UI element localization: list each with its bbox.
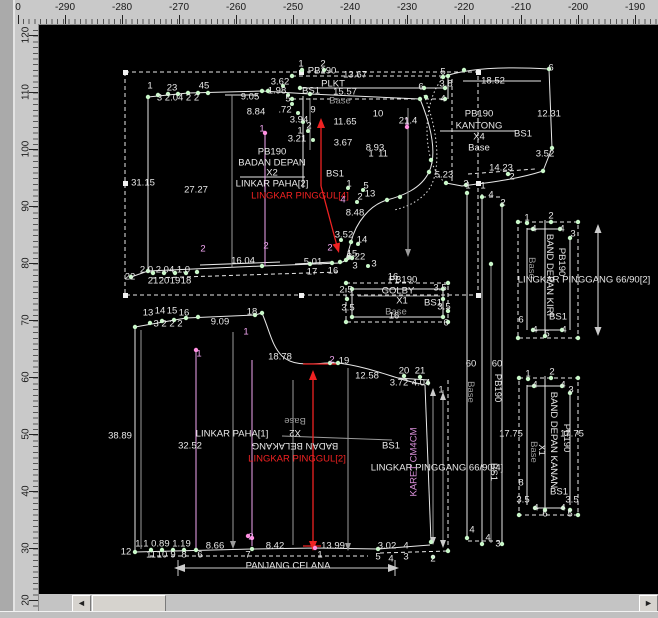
ruler-major-tick	[29, 491, 38, 492]
ruler-major-tick	[29, 548, 38, 549]
status-bar	[0, 611, 658, 618]
left-edge-strip	[0, 0, 15, 618]
ruler-tick-label: -250	[283, 2, 303, 13]
ruler-tick-label: -270	[169, 2, 189, 13]
ruler-major-tick	[293, 15, 294, 24]
ruler-tick-label: -260	[226, 2, 246, 13]
ruler-tick-label: -230	[397, 2, 417, 13]
ruler-tick-label: 0	[15, 2, 21, 13]
ruler-major-tick	[18, 15, 19, 24]
ruler-major-tick	[29, 600, 38, 601]
ruler-major-tick	[29, 434, 38, 435]
ruler-major-tick	[236, 15, 237, 24]
ruler-major-tick	[29, 377, 38, 378]
ruler-tick-label: -200	[568, 2, 588, 13]
ruler-major-tick	[29, 35, 38, 36]
ruler-major-tick	[29, 92, 38, 93]
ruler-major-tick	[464, 15, 465, 24]
ruler-tick-label: -240	[340, 2, 360, 13]
scroll-right-icon: ►	[644, 598, 653, 608]
cad-pattern-window: { "app": { "canvas_bg": "#000000", "rule…	[0, 0, 658, 618]
scroll-left-icon: ◄	[77, 598, 86, 608]
ruler-major-tick	[29, 149, 38, 150]
ruler-major-tick	[578, 15, 579, 24]
vertical-ruler: 1201101009080706050403020	[15, 24, 39, 618]
ruler-tick-label: -220	[454, 2, 474, 13]
ruler-major-tick	[65, 15, 66, 24]
ruler-major-tick	[407, 15, 408, 24]
ruler-tick-label: -190	[625, 2, 645, 13]
ruler-major-tick	[521, 15, 522, 24]
pattern-canvas[interactable]	[39, 25, 658, 594]
ruler-major-tick	[635, 15, 636, 24]
horizontal-ruler: 0-290-280-270-260-250-240-230-220-210-20…	[15, 0, 658, 25]
ruler-major-tick	[29, 206, 38, 207]
ruler-major-tick	[29, 320, 38, 321]
ruler-tick-label: -280	[112, 2, 132, 13]
ruler-tick-label: -210	[511, 2, 531, 13]
ruler-tick-label: -290	[55, 2, 75, 13]
ruler-major-tick	[122, 15, 123, 24]
horizontal-scrollbar[interactable]: ◄ ►	[39, 594, 658, 612]
ruler-major-tick	[29, 263, 38, 264]
ruler-major-tick	[350, 15, 351, 24]
ruler-major-tick	[179, 15, 180, 24]
